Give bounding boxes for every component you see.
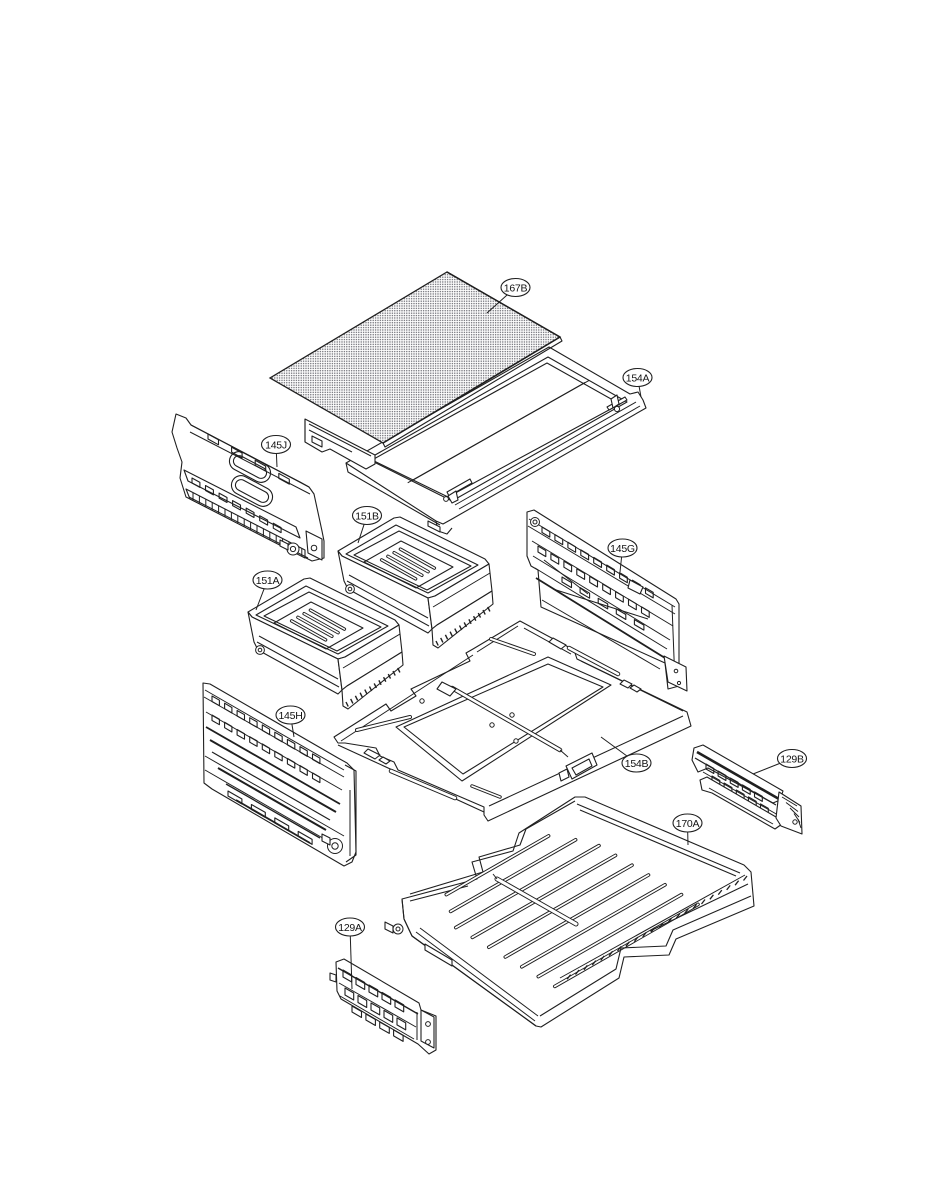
svg-text:129A: 129A <box>338 922 362 934</box>
svg-text:170A: 170A <box>676 818 700 830</box>
svg-text:167B: 167B <box>504 282 528 294</box>
svg-text:154B: 154B <box>625 758 649 770</box>
svg-text:145H: 145H <box>278 710 302 722</box>
svg-text:154A: 154A <box>626 372 650 384</box>
svg-text:129B: 129B <box>780 753 804 765</box>
svg-text:145J: 145J <box>265 439 287 451</box>
svg-text:151B: 151B <box>355 510 379 522</box>
svg-text:151A: 151A <box>256 575 280 587</box>
svg-text:145G: 145G <box>610 543 635 555</box>
